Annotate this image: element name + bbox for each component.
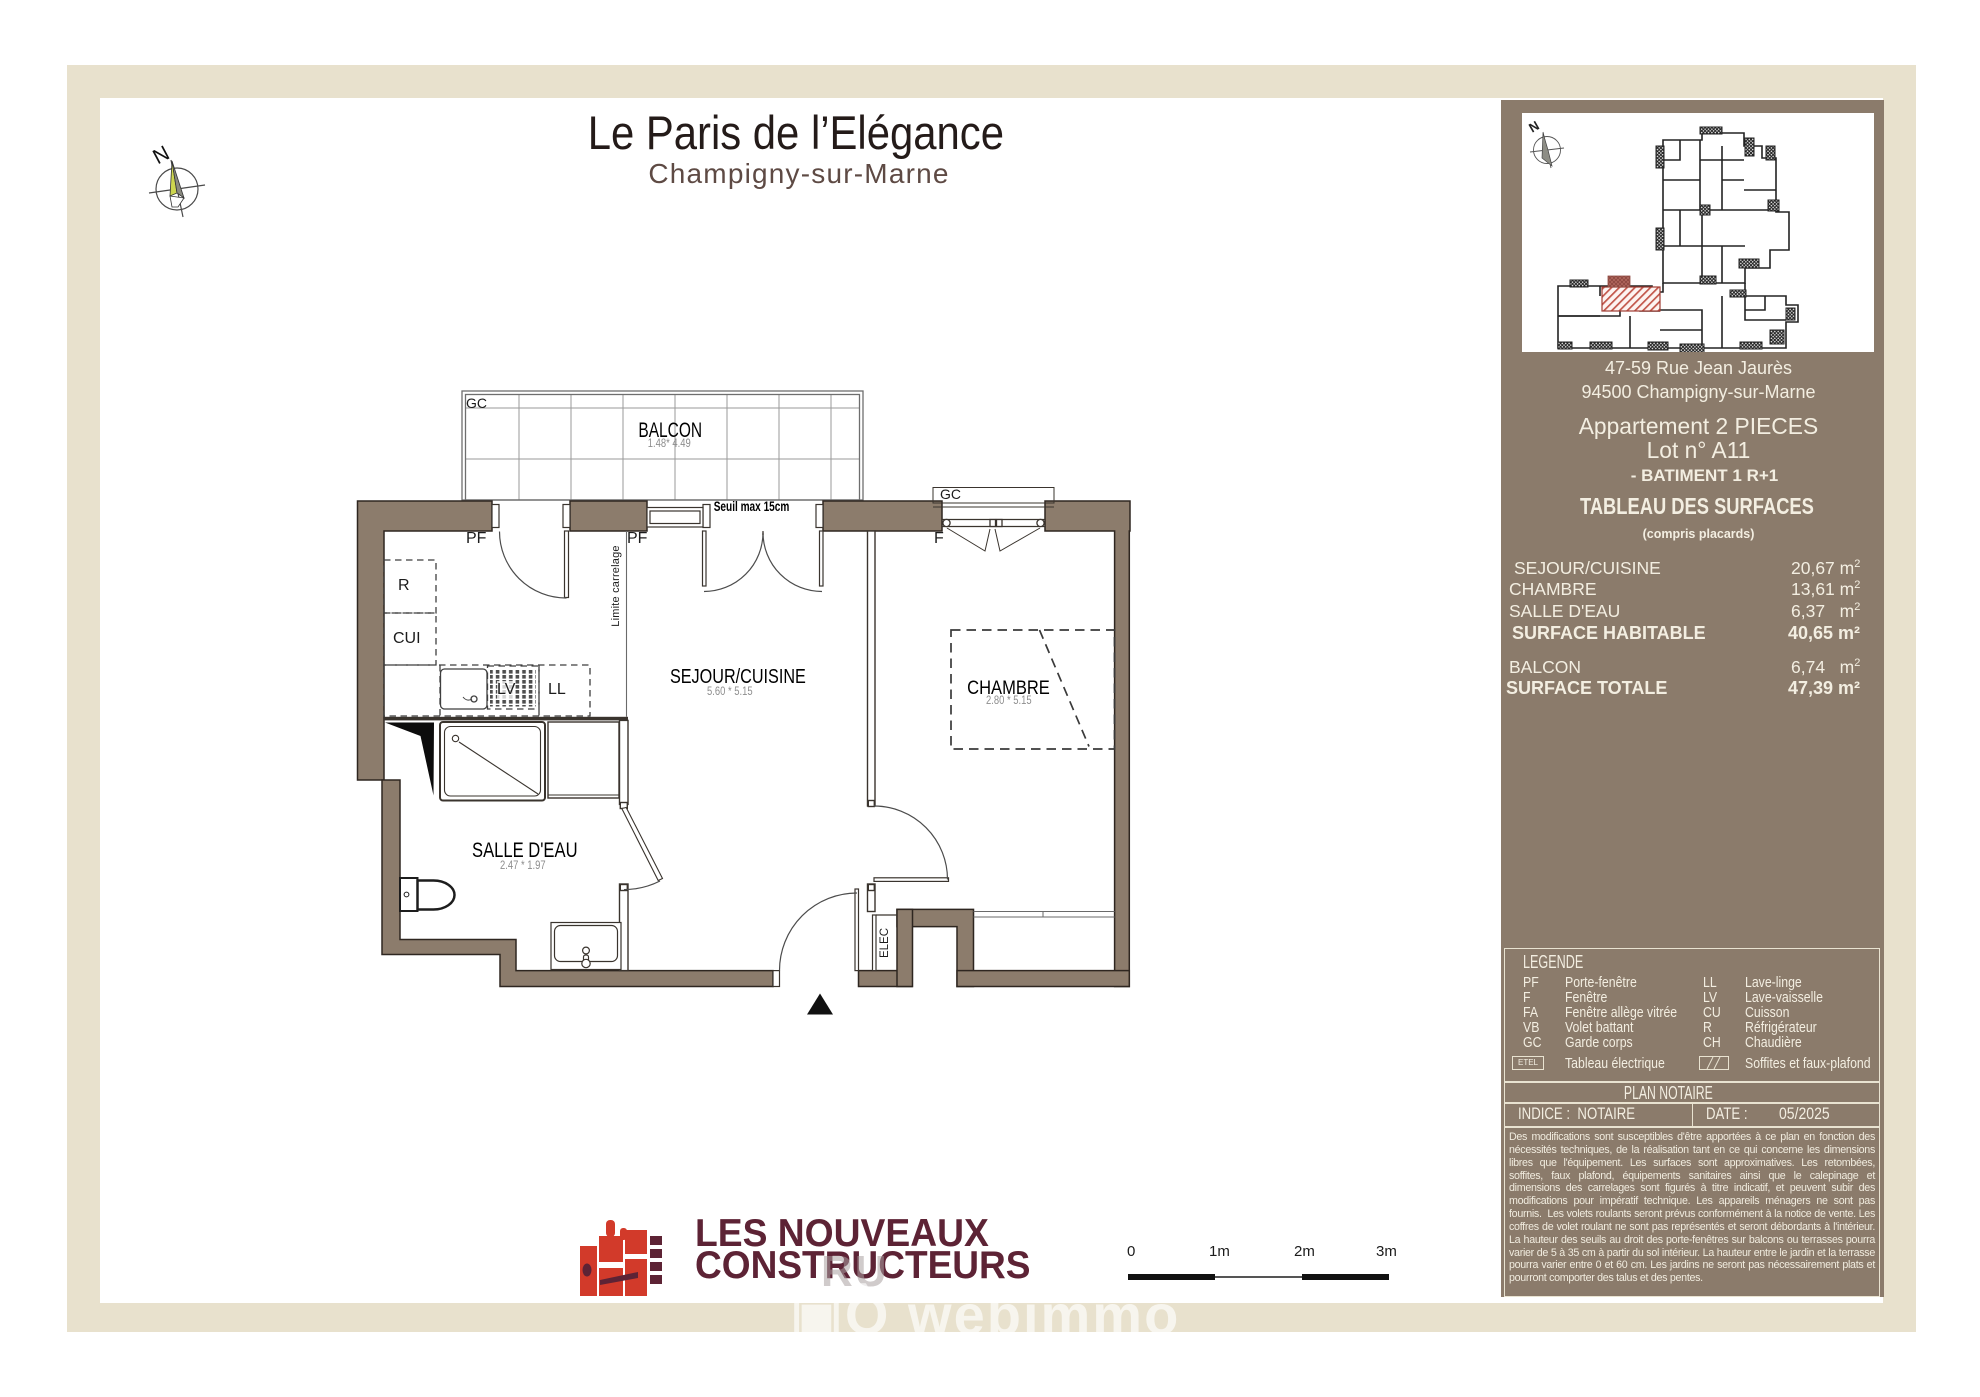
svg-text:N: N bbox=[149, 142, 173, 169]
svg-text:N: N bbox=[1526, 118, 1542, 136]
